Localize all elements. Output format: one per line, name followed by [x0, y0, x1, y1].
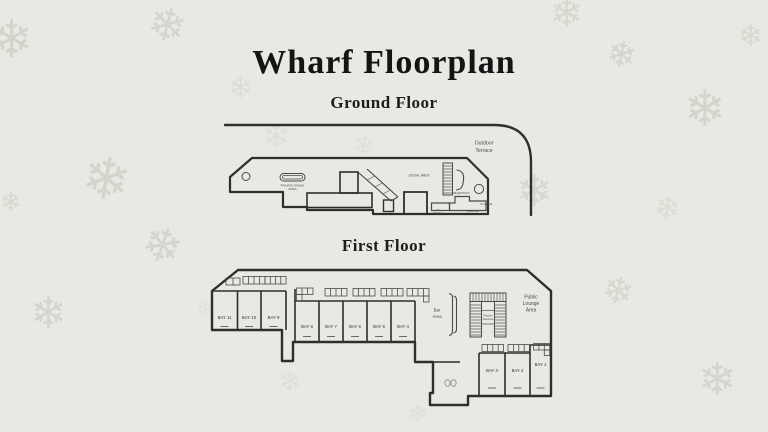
- poster: ❄ ❄ ❄ ❄ ❄ ❄ ❄ ❄ ❄ ❄ ❄ ❄ ❄ ❄ ❄ ❄ ❄ ❄ ❄ ❄ …: [0, 0, 768, 432]
- feature-staircase-icon: Feature Staircase: [470, 293, 506, 337]
- table-group: [226, 277, 286, 286]
- public-lounge-label: Area: [526, 308, 537, 314]
- bay-label: BAY 10: [242, 315, 257, 320]
- wc-icon: [451, 380, 456, 386]
- bay-label: BAY 5: [373, 324, 385, 329]
- feature-staircase-label: Feature: [484, 314, 493, 318]
- dining-feature: [280, 174, 305, 182]
- dining-feature-inner: [283, 176, 303, 180]
- bar-bracket: [449, 294, 453, 336]
- diagonal-stairs-icon: [359, 169, 398, 201]
- round-table: [474, 184, 483, 193]
- bay-block-left: BAY 11 BAY 10 BAY 9: [212, 277, 286, 331]
- back-bar-label: Back Bar: [467, 209, 479, 213]
- public-lounge-label: Lounge: [523, 301, 540, 307]
- social-area-label: SOCIAL AREA: [409, 174, 431, 178]
- room: [384, 200, 394, 212]
- floorplan-canvas: Outdoor Terrace PRIVATE DINING AREA SOCI…: [0, 0, 768, 432]
- wc-icon: [445, 380, 450, 386]
- bar-area: Bar Area: [432, 294, 456, 336]
- dining-label: AREA: [288, 187, 296, 191]
- bay-label: BAY 3: [486, 368, 498, 373]
- room: [340, 172, 358, 193]
- bay-label: BAY 6: [349, 324, 361, 329]
- bar-bracket: [454, 296, 457, 333]
- bay-label: BAY 9: [268, 315, 280, 320]
- bar-area-label: Bar: [434, 308, 441, 313]
- bay-label: BAY 2: [512, 368, 524, 373]
- room: [307, 193, 372, 208]
- front-bar-label: Front Bar: [480, 202, 492, 206]
- ground-floor-plan: Outdoor Terrace PRIVATE DINING AREA SOCI…: [225, 125, 531, 215]
- reception-label: RECEPTION: [453, 191, 470, 195]
- stairs-icon: [443, 163, 453, 195]
- feature-staircase-label: Staircase: [483, 317, 494, 321]
- terrace-label: Terrace: [475, 148, 492, 154]
- reception-desk: [456, 170, 464, 190]
- bay-label: BAY 11: [218, 315, 232, 320]
- terrace-label: Outdoor: [475, 141, 494, 147]
- table-group: [297, 288, 430, 302]
- room: [404, 192, 427, 213]
- dj-booth-label: BOOTH: [433, 211, 442, 215]
- round-table: [242, 173, 250, 181]
- bay-label: BAY 8: [301, 324, 313, 329]
- first-floor-plan: BAY 11 BAY 10 BAY 9 BAY 8 BAY 7 BAY: [212, 270, 551, 405]
- bay-label: BAY 7: [325, 324, 337, 329]
- public-lounge-label: Public: [524, 295, 538, 301]
- bar-area-label: Area: [432, 314, 442, 319]
- bay-block-right: BAY 3 BAY 2 BAY 1: [479, 344, 551, 397]
- bay-label: BAY 4: [397, 324, 409, 329]
- bay-label: BAY 1: [535, 362, 547, 367]
- wc-room: [433, 362, 460, 386]
- bay-block-middle: BAY 8 BAY 7 BAY 6 BAY 5 BAY 4: [295, 288, 429, 342]
